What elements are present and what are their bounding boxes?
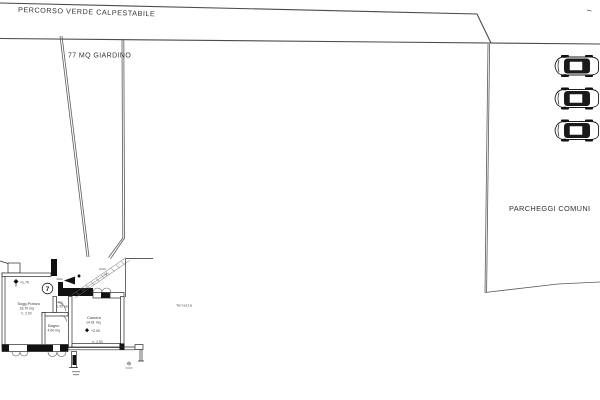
- room-bedroom-name: Camera: [87, 315, 102, 320]
- illegible-microtext: [72, 371, 80, 372]
- garden-left-line: [60, 36, 87, 257]
- stairs-direction-arrow: [83, 274, 107, 291]
- parking-left-line: [485, 44, 488, 293]
- door-swing-arc: [48, 352, 66, 357]
- window-sill-black: [101, 293, 110, 299]
- car-icon: [555, 88, 599, 110]
- level-marker-bedroom: +2.00: [85, 328, 100, 333]
- parking-label: PARCHEGGI COMUNI: [509, 204, 590, 213]
- level-marker-icon: [14, 279, 19, 284]
- door-swing-arc: [61, 316, 67, 322]
- entrance-arrow-icon: [64, 277, 75, 285]
- plan-edge-line: [0, 261, 8, 264]
- wall-bottom-black: [27, 345, 53, 352]
- illegible-microtext: [57, 279, 63, 280]
- room-terrace-name: Terrazza: [176, 304, 193, 308]
- room-living-name: Sogg.Pranzo: [18, 301, 41, 306]
- wall-bedroom-left: [69, 297, 73, 348]
- wall-appendix-black: [73, 355, 77, 365]
- room-bath-area: 4.60 mq: [48, 329, 61, 333]
- door-swing-arc: [93, 288, 102, 293]
- survey-mark-icon: [126, 361, 133, 368]
- site-plan-drawing: PERCORSO VERDE CALPESTABILE 77 MQ GIARDI…: [0, 0, 600, 400]
- room-bath-name: Bagno: [48, 323, 59, 328]
- terrace-parapet-return: [138, 350, 144, 362]
- wall-top-living: [2, 273, 51, 277]
- level-marker-icon: [77, 274, 81, 278]
- walkway-band: PERCORSO VERDE CALPESTABILE: [0, 3, 600, 44]
- floor-plan: 7 +1.70 Sogg.Pranzo 18.70 mq h. 2.90 Ing…: [0, 258, 193, 376]
- level-marker-icon: [85, 328, 89, 332]
- walkway-label: PERCORSO VERDE CALPESTABILE: [18, 5, 156, 18]
- room-bedroom-height: h. 2.90: [93, 340, 103, 344]
- level-marker-entry: +1.70: [14, 279, 29, 287]
- boundary-tick: [587, 10, 592, 11]
- garden-right-line: [109, 40, 123, 258]
- illegible-microtext: [99, 269, 106, 270]
- door-swing-arc: [12, 352, 28, 356]
- room-living-area: 18.70 mq: [20, 307, 35, 311]
- wall-bath-top: [42, 313, 68, 317]
- wall-corner-black: [2, 345, 9, 352]
- garden-left-line-inner: [62, 36, 89, 257]
- car-icon: [555, 55, 599, 77]
- wall-corner-black: [60, 345, 68, 352]
- wall-corner-black: [120, 344, 125, 350]
- site-plan-svg: PERCORSO VERDE CALPESTABILE 77 MQ GIARDI…: [0, 0, 600, 400]
- wall-notch: [8, 263, 20, 273]
- wall-column: [51, 259, 57, 276]
- car-icon: [555, 120, 599, 142]
- walkway-lower-edge: [0, 39, 600, 45]
- wall-bath-left: [42, 313, 45, 348]
- level-bedroom-value: +2.00: [91, 329, 100, 333]
- garden-label: 77 MQ GIARDINO: [68, 53, 131, 60]
- parking-left-line-inner: [487, 44, 490, 293]
- door-swing-arc: [102, 288, 111, 293]
- terrace-parapet-end: [135, 345, 143, 350]
- wall-bedroom-right: [121, 297, 125, 348]
- parking-bottom-line: [485, 282, 600, 293]
- garden-boundary: 77 MQ GIARDINO: [60, 36, 131, 259]
- parking-area: PARCHEGGI COMUNI: [485, 44, 600, 293]
- level-entry-value: +1.70: [20, 281, 29, 285]
- room-bedroom-area: 14.01 mq: [86, 321, 101, 325]
- room-entry-area: 1.99 mq: [57, 305, 69, 309]
- room-living-height: h. 2.90: [22, 312, 32, 316]
- wall-left: [2, 273, 5, 347]
- illegible-microtext: [73, 374, 79, 375]
- unit-number: 7: [46, 286, 50, 293]
- wall-entry-black: [58, 282, 63, 289]
